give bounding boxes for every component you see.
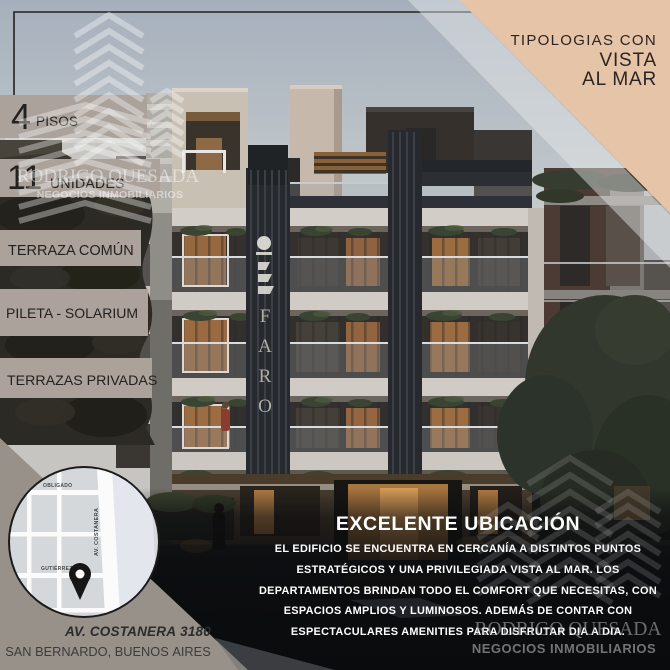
svg-text:NEGOCIOS INMOBILIARIOS: NEGOCIOS INMOBILIARIOS: [37, 189, 184, 201]
svg-text:NEGOCIOS INMOBILIARIOS: NEGOCIOS INMOBILIARIOS: [472, 641, 656, 656]
svg-text:RODRIGO QUESADA: RODRIGO QUESADA: [475, 619, 662, 640]
svg-text:RODRIGO QUESADA: RODRIGO QUESADA: [17, 166, 199, 187]
